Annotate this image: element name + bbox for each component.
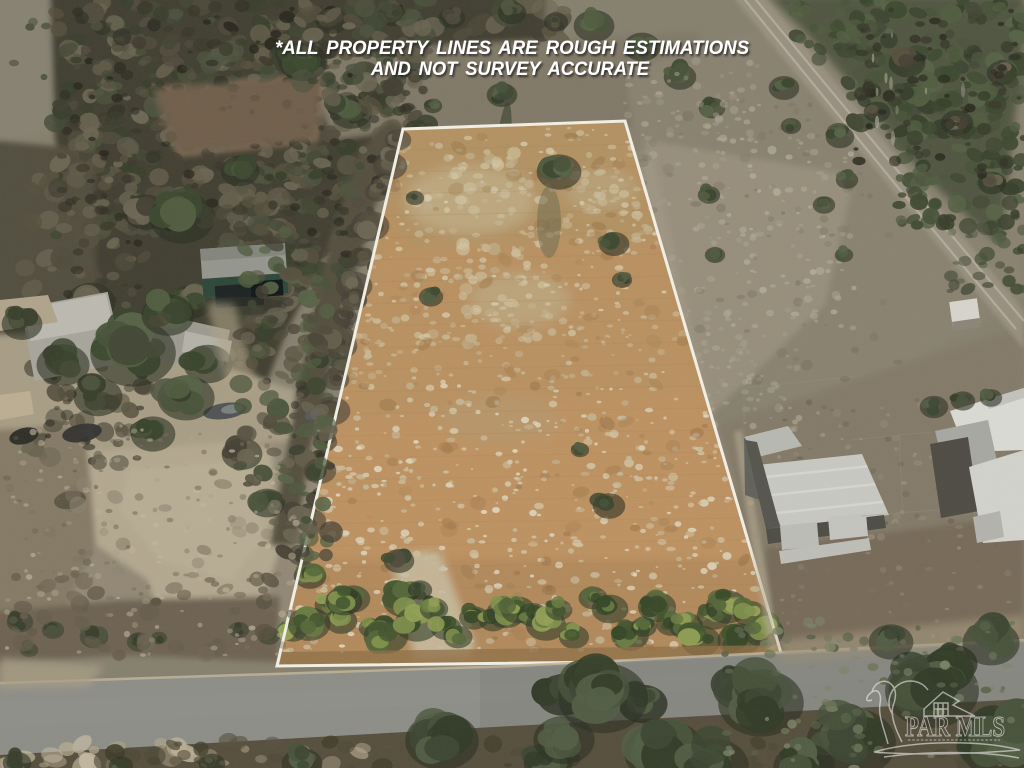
svg-text:*ALL PROPERTY LINES ARE ROUGH: *ALL PROPERTY LINES ARE ROUGH ESTIMATION… xyxy=(275,37,749,59)
svg-text:PAR MLS: PAR MLS xyxy=(905,712,1005,743)
svg-text:AND NOT SURVEY ACCURATE: AND NOT SURVEY ACCURATE xyxy=(370,58,650,80)
